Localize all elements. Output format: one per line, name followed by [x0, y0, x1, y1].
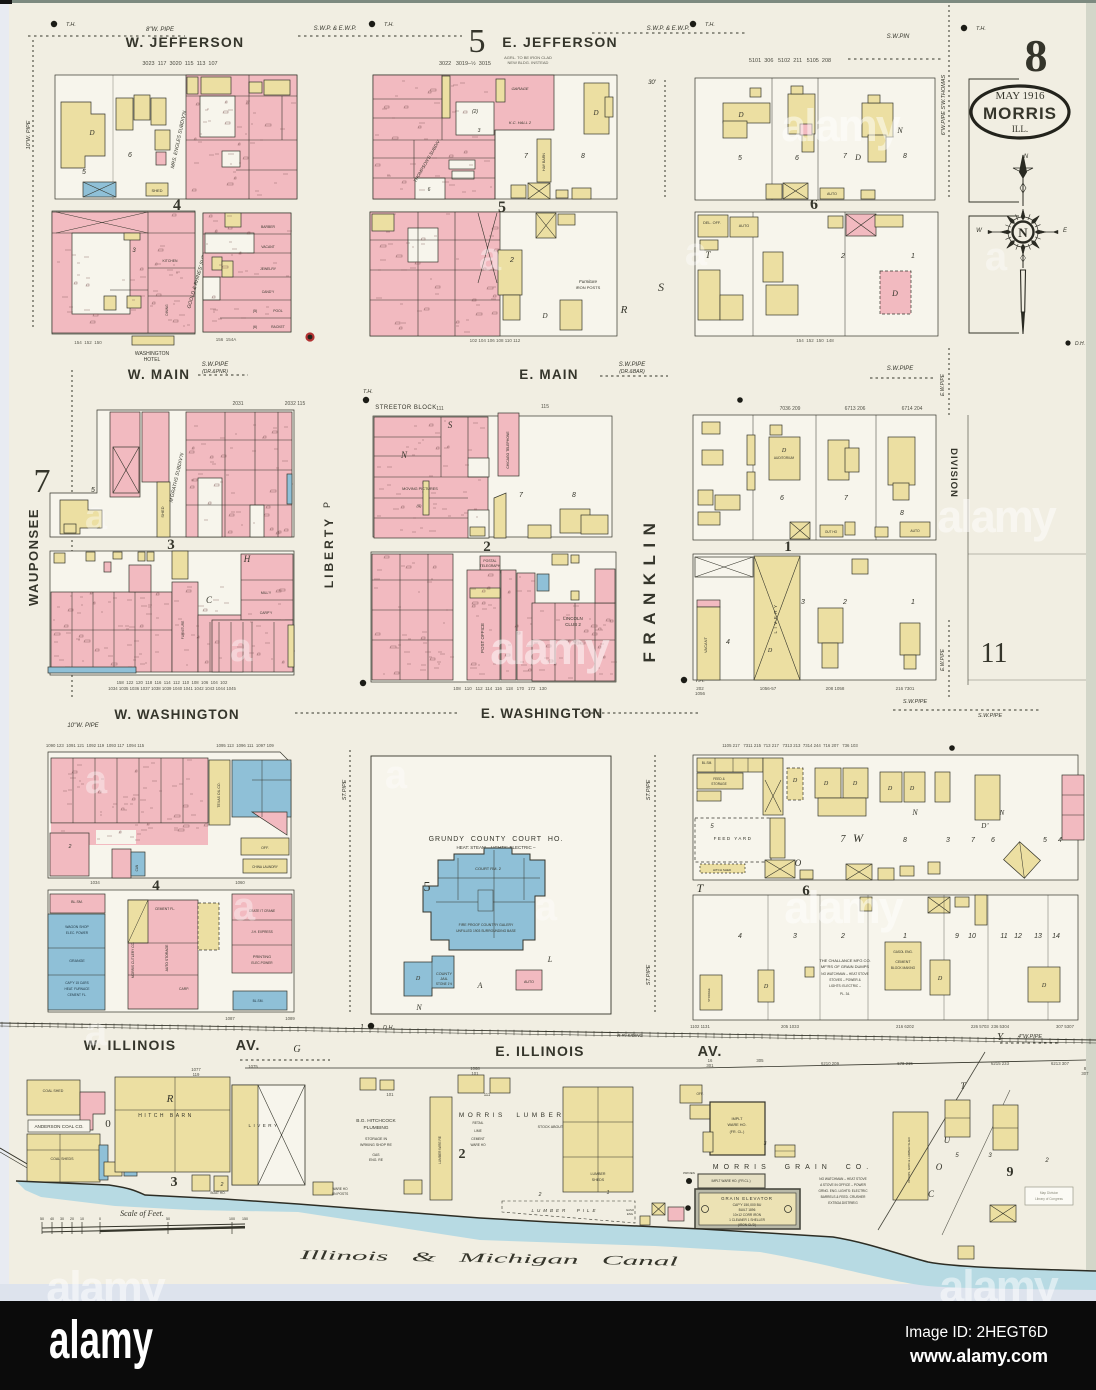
svg-text:Furniture: Furniture [579, 279, 598, 284]
svg-text:6: 6 [991, 837, 995, 844]
svg-text:8: 8 [903, 837, 907, 844]
svg-text:6: 6 [428, 187, 431, 193]
svg-text:3022 3019–½ 3015: 3022 3019–½ 3015 [439, 60, 491, 67]
svg-text:ELEC. POWER: ELEC. POWER [66, 931, 89, 935]
svg-text:SHEDS: SHEDS [592, 1178, 605, 1182]
svg-text:111: 111 [484, 1092, 491, 1097]
svg-text:PRINTING: PRINTING [253, 955, 271, 959]
svg-text:SHED: SHED [151, 188, 162, 193]
svg-text:RETAIL: RETAIL [473, 1121, 484, 1125]
svg-text:1: 1 [911, 599, 915, 606]
svg-text:3: 3 [801, 599, 805, 606]
svg-text:WAGON SHOP: WAGON SHOP [65, 925, 89, 929]
svg-text:a: a [985, 235, 1008, 279]
svg-text:CHINA LAUNDRY: CHINA LAUNDRY [252, 865, 279, 869]
svg-text:307 5307: 307 5307 [1056, 1024, 1075, 1029]
svg-text:MORRIS GRAIN CO.: MORRIS GRAIN CO. [713, 1164, 873, 1171]
svg-text:1087: 1087 [225, 1016, 235, 1021]
svg-text:CEMENT: CEMENT [471, 1137, 485, 1141]
svg-text:14: 14 [1052, 933, 1060, 940]
svg-text:7: 7 [34, 463, 51, 500]
svg-text:a: a [479, 235, 502, 279]
svg-text:S.W.PIN: S.W.PIN [887, 34, 910, 40]
svg-text:S.W.P. & E.W.P.: S.W.P. & E.W.P. [314, 26, 357, 32]
svg-text:2: 2 [840, 933, 845, 940]
svg-text:a: a [85, 1010, 108, 1054]
svg-text:VACANT: VACANT [703, 636, 708, 652]
svg-text:DEL. OFF.: DEL. OFF. [703, 221, 721, 225]
svg-text:CARP’Y: CARP’Y [260, 611, 273, 615]
svg-text:PL. 34.: PL. 34. [840, 992, 850, 996]
svg-text:D: D [909, 786, 915, 792]
svg-text:307: 307 [1081, 1071, 1089, 1076]
svg-text:H: H [243, 554, 251, 564]
svg-text:HOTEL: HOTEL [144, 357, 161, 363]
svg-text:9: 9 [1007, 1165, 1014, 1180]
svg-text:www.alamy.com: www.alamy.com [909, 1346, 1048, 1366]
svg-text:5: 5 [1043, 837, 1047, 844]
svg-text:101: 101 [386, 1092, 394, 1097]
svg-text:4: 4 [738, 933, 742, 940]
svg-text:1034 1035 1036 1037 1038 1039: 1034 1035 1036 1037 1038 1039 1040 1041 … [108, 686, 236, 691]
svg-text:208 1058: 208 1058 [826, 686, 845, 691]
svg-text:115: 115 [541, 404, 549, 410]
svg-text:RACKET: RACKET [271, 325, 285, 329]
svg-text:S.W.P. & E.W.P.: S.W.P. & E.W.P. [647, 26, 690, 32]
svg-text:WARE HO.: WARE HO. [727, 1123, 746, 1127]
svg-text:305: 305 [756, 1058, 764, 1063]
svg-text:6: 6 [780, 495, 784, 502]
svg-text:E. JEFFERSON: E. JEFFERSON [502, 34, 618, 50]
svg-text:POST OFFICE: POST OFFICE [480, 623, 485, 653]
svg-text:3: 3 [764, 1141, 767, 1147]
svg-text:CEMENT FL.: CEMENT FL. [155, 907, 175, 911]
svg-text:205 1033: 205 1033 [781, 1024, 800, 1029]
svg-text:ILL.: ILL. [1012, 124, 1028, 134]
svg-text:0: 0 [105, 1118, 111, 1130]
svg-text:STREETOR BLOCK: STREETOR BLOCK [375, 405, 437, 411]
svg-text:STOVES – POWER &: STOVES – POWER & [829, 978, 861, 982]
svg-text:Image ID: 2HEGT6D: Image ID: 2HEGT6D [905, 1324, 1048, 1341]
svg-text:WARE HO: WARE HO [332, 1187, 348, 1191]
svg-text:1090 123 1091 121 1092 119: 1090 123 1091 121 1092 119 1093 117 1094… [46, 743, 145, 748]
svg-text:1: 1 [784, 539, 792, 555]
svg-text:P: P [322, 502, 332, 508]
svg-text:11: 11 [981, 638, 1008, 669]
svg-text:KITCHEN: KITCHEN [163, 259, 178, 263]
svg-text:N: N [911, 808, 918, 817]
svg-text:S.W.PIPE: S.W.PIPE [887, 366, 914, 372]
svg-text:1: 1 [607, 1190, 610, 1196]
svg-text:(6): (6) [253, 325, 257, 329]
svg-text:T.H.: T.H. [384, 22, 394, 28]
svg-text:2: 2 [1044, 1158, 1049, 1164]
svg-text:Scale of Feet.: Scale of Feet. [120, 1209, 164, 1218]
svg-text:D: D [781, 448, 787, 454]
svg-text:N: N [999, 809, 1005, 817]
svg-text:216 6202: 216 6202 [896, 1024, 915, 1029]
svg-text:119: 119 [193, 1072, 200, 1077]
svg-text:MAY 1916: MAY 1916 [995, 90, 1045, 102]
svg-text:alamy: alamy [49, 1310, 153, 1370]
svg-text:COURT RM. 2: COURT RM. 2 [475, 866, 502, 871]
svg-text:BARRELS & FEED. CRUSHER: BARRELS & FEED. CRUSHER [821, 1195, 867, 1199]
svg-text:OFF.: OFF. [697, 1092, 704, 1096]
svg-text:a: a [85, 494, 108, 538]
svg-text:6714 204: 6714 204 [902, 406, 923, 412]
svg-text:(IRON CL’D): (IRON CL’D) [738, 1223, 756, 1227]
svg-text:BLOCK MAKING: BLOCK MAKING [891, 966, 916, 970]
svg-text:6213 307: 6213 307 [1051, 1061, 1070, 1066]
svg-text:5: 5 [424, 880, 431, 895]
svg-text:4: 4 [1058, 837, 1062, 844]
svg-text:D.H.: D.H. [383, 1025, 394, 1031]
svg-text:JEWELRY: JEWELRY [260, 267, 277, 271]
svg-text:50: 50 [166, 1217, 170, 1221]
svg-text:D: D [1041, 983, 1047, 989]
svg-text:D’: D’ [980, 822, 989, 830]
svg-text:VACANT: VACANT [261, 245, 275, 249]
svg-text:LIME: LIME [474, 1129, 481, 1133]
svg-text:7036 209: 7036 209 [780, 406, 801, 412]
svg-text:D: D [852, 781, 858, 787]
svg-text:216 7301: 216 7301 [896, 686, 915, 691]
svg-text:S: S [658, 280, 664, 294]
svg-text:TELEGRAPH: TELEGRAPH [480, 564, 501, 568]
svg-text:10′′W. PIPE: 10′′W. PIPE [26, 120, 32, 149]
svg-text:N: N [1018, 225, 1028, 240]
svg-text:2: 2 [842, 599, 847, 606]
svg-text:GRUNDY COUNTY COURT HO.: GRUNDY COUNTY COURT HO. [429, 836, 564, 843]
svg-text:DINING: DINING [165, 304, 169, 316]
svg-text:WAUPONSEE: WAUPONSEE [26, 508, 41, 606]
svg-text:8: 8 [1025, 30, 1048, 81]
svg-text:OFF.: OFF. [261, 846, 269, 850]
svg-text:3: 3 [478, 128, 481, 134]
svg-text:LINCOLN: LINCOLN [563, 616, 583, 621]
svg-text:S.W.PIPE: S.W.PIPE [903, 699, 928, 705]
svg-text:FEED YARD: FEED YARD [714, 836, 753, 841]
svg-text:alamy: alamy [490, 623, 610, 674]
svg-text:AV.: AV. [236, 1038, 261, 1054]
svg-text:D: D [592, 109, 598, 117]
svg-text:108 110 112 114 116 11: 108 110 112 114 116 118 170 172 130 [453, 686, 547, 691]
svg-text:S: S [448, 420, 453, 430]
svg-text:20: 20 [70, 1217, 74, 1221]
svg-text:A STOVE IN OFFICE – POWER: A STOVE IN OFFICE – POWER [820, 1183, 867, 1187]
svg-text:J.H. EXPRESS: J.H. EXPRESS [251, 930, 273, 934]
svg-text:R.R. SIDING: R.R. SIDING [617, 1033, 643, 1038]
svg-text:B.G. HITCHCOCK: B.G. HITCHCOCK [356, 1118, 396, 1124]
svg-text:BOAT HO.: BOAT HO. [211, 1191, 226, 1195]
svg-text:8: 8 [900, 510, 904, 517]
svg-text:8: 8 [903, 153, 907, 160]
svg-text:GASOL ENG.: GASOL ENG. [893, 950, 913, 954]
svg-text:154 152 150 148: 154 152 150 148 [796, 338, 834, 343]
svg-text:2: 2 [220, 1182, 224, 1188]
svg-text:150: 150 [242, 1217, 248, 1221]
svg-text:LIVERY: LIVERY [249, 1123, 280, 1128]
svg-text:30′: 30′ [648, 80, 657, 86]
svg-text:2032 115: 2032 115 [285, 401, 306, 407]
svg-text:10′′W. PIPE: 10′′W. PIPE [67, 723, 99, 729]
svg-text:IMPLT: IMPLT [732, 1117, 744, 1121]
svg-text:D: D [763, 984, 769, 990]
svg-text:D: D [792, 778, 798, 784]
svg-text:AUTO: AUTO [524, 980, 534, 984]
svg-text:MOVING PICTURES: MOVING PICTURES [402, 487, 438, 491]
svg-text:R: R [620, 304, 628, 316]
svg-text:IMPLT WARE HO. (FR.CL.): IMPLT WARE HO. (FR.CL.) [711, 1179, 750, 1183]
svg-text:8′′W. PIPE: 8′′W. PIPE [146, 27, 175, 33]
svg-text:100: 100 [229, 1217, 235, 1221]
svg-text:D: D [767, 648, 773, 654]
svg-text:G: G [293, 1044, 300, 1055]
svg-text:(5): (5) [253, 309, 257, 313]
svg-text:FURNITURE: FURNITURE [181, 621, 185, 639]
svg-text:1102 1131: 1102 1131 [690, 1024, 710, 1029]
svg-text:POSTAL: POSTAL [483, 559, 496, 563]
svg-text:S.W.PIPE: S.W.PIPE [978, 713, 1003, 719]
svg-text:1105 217 7311 215 713 217: 1105 217 7311 215 713 217 7313 213 7314 … [722, 743, 858, 748]
svg-text:HITCH SHED: HITCH SHED [713, 868, 732, 872]
svg-text:THE CHALLANCE MFG CO.: THE CHALLANCE MFG CO. [819, 958, 870, 963]
svg-text:3: 3 [946, 837, 950, 844]
svg-text:NO WATCHMAN – HEAT STOVE: NO WATCHMAN – HEAT STOVE [819, 1177, 866, 1181]
svg-text:10×12 CORR IRON: 10×12 CORR IRON [733, 1213, 762, 1217]
svg-text:2: 2 [538, 1192, 542, 1198]
svg-text:POOL: POOL [273, 309, 283, 313]
svg-text:HAY BARN: HAY BARN [542, 153, 546, 171]
svg-text:W. WASHINGTON: W. WASHINGTON [114, 707, 239, 722]
svg-text:Map Division: Map Division [1040, 1191, 1058, 1195]
svg-text:W: W [853, 831, 864, 845]
svg-text:3: 3 [793, 933, 797, 940]
svg-text:NO WATCHMAN – HEAT STOVE: NO WATCHMAN – HEAT STOVE [821, 972, 868, 976]
svg-text:EXTBGA DISTRIB’G: EXTBGA DISTRIB’G [828, 1201, 858, 1205]
svg-text:FRANKLIN: FRANKLIN [640, 516, 659, 663]
svg-text:AUTO: AUTO [739, 224, 750, 228]
svg-text:ST.PIPE: ST.PIPE [342, 779, 348, 800]
svg-text:COUNTY: COUNTY [436, 972, 452, 976]
svg-text:a: a [685, 230, 708, 274]
svg-text:CAP’Y 15 CARS: CAP’Y 15 CARS [65, 981, 89, 985]
svg-text:9: 9 [955, 933, 959, 940]
svg-text:HITCH BARN: HITCH BARN [138, 1113, 194, 1119]
svg-text:D: D [823, 781, 829, 787]
svg-text:3: 3 [171, 1175, 178, 1190]
svg-text:5: 5 [469, 23, 486, 60]
svg-text:TEXAS OIL CO.: TEXAS OIL CO. [217, 782, 221, 807]
svg-text:T.H.: T.H. [363, 389, 373, 395]
svg-text:WARE HO: WARE HO [470, 1143, 486, 1147]
svg-text:BARBER: BARBER [261, 225, 275, 229]
svg-text:BL.SM.: BL.SM. [253, 999, 264, 1003]
svg-text:1034: 1034 [90, 880, 100, 885]
svg-text:30: 30 [60, 1217, 64, 1221]
svg-text:ENG. RE: ENG. RE [369, 1158, 384, 1162]
svg-text:ELEC.POWER: ELEC.POWER [251, 961, 273, 965]
svg-text:158 122 120 118 116 114: 158 122 120 118 116 114 112 110 108 106 … [117, 680, 228, 685]
svg-text:FIRE PROOF COUNTRY GALERY: FIRE PROOF COUNTRY GALERY [459, 923, 514, 927]
svg-text:3023 117 3020 115 113 107: 3023 117 3020 115 113 107 [142, 61, 217, 67]
svg-text:a: a [535, 885, 558, 929]
svg-text:D: D [415, 976, 421, 982]
svg-text:GRAIN ELEVATOR: GRAIN ELEVATOR [721, 1196, 773, 1201]
svg-text:JAIL: JAIL [440, 977, 448, 981]
svg-text:a: a [233, 885, 256, 929]
svg-text:S.W.PIPE: S.W.PIPE [619, 362, 646, 368]
svg-text:D: D [541, 312, 547, 320]
svg-text:AUTO STORAGE: AUTO STORAGE [165, 944, 169, 972]
svg-text:1: 1 [903, 933, 907, 940]
svg-text:1056: 1056 [695, 691, 706, 696]
svg-text:STORAGE: STORAGE [711, 782, 727, 786]
svg-text:C: C [206, 595, 213, 605]
svg-text:S.W.PIPE: S.W.PIPE [202, 362, 229, 368]
svg-text:(2): (2) [472, 109, 478, 115]
svg-text:ANDERSON COAL CO.: ANDERSON COAL CO. [34, 1124, 83, 1129]
svg-text:(FR. CL.): (FR. CL.) [730, 1130, 745, 1134]
svg-text:K.C. HALL 2: K.C. HALL 2 [509, 120, 532, 125]
svg-text:101: 101 [471, 1071, 479, 1076]
svg-text:O: O [936, 1162, 943, 1172]
svg-text:2: 2 [840, 253, 845, 260]
svg-text:PLUMBING: PLUMBING [363, 1125, 388, 1131]
svg-text:COAL SHEDS: COAL SHEDS [50, 1157, 74, 1161]
svg-text:1095 113 1096 111 1097 109: 1095 113 1096 111 1097 109 [216, 743, 274, 748]
svg-text:ST.PIPE: ST.PIPE [646, 964, 652, 985]
svg-text:alamy: alamy [781, 100, 901, 151]
svg-text:MF’RS OF GRAIN DUMPS: MF’RS OF GRAIN DUMPS [821, 964, 870, 969]
svg-text:1056-57: 1056-57 [760, 686, 777, 691]
svg-text:2: 2 [509, 257, 514, 264]
svg-text:LUMBER PILE: LUMBER PILE [531, 1208, 598, 1213]
svg-text:R: R [166, 1093, 174, 1105]
svg-text:6713 206: 6713 206 [845, 406, 866, 412]
svg-text:a: a [85, 758, 108, 802]
svg-text:WRKING SHOP RE: WRKING SHOP RE [360, 1143, 392, 1147]
svg-text:ENG: ENG [627, 1212, 633, 1216]
svg-text:N: N [1024, 154, 1029, 160]
svg-text:a: a [385, 753, 408, 797]
svg-text:N: N [415, 1003, 422, 1012]
svg-text:L: L [547, 955, 553, 964]
svg-text:E.W.PIPE: E.W.PIPE [940, 648, 946, 671]
svg-text:alamy: alamy [784, 882, 904, 933]
svg-text:10: 10 [968, 933, 976, 940]
svg-text:4: 4 [726, 639, 730, 646]
svg-text:2: 2 [459, 1147, 466, 1162]
svg-text:C: C [928, 1189, 935, 1199]
svg-text:ON POSTS: ON POSTS [332, 1192, 348, 1196]
svg-text:301: 301 [706, 1063, 714, 1068]
svg-text:LIGHTS: ELECTRIC –: LIGHTS: ELECTRIC – [829, 984, 861, 988]
svg-text:226 5703 236 5304: 226 5703 236 5304 [971, 1024, 1010, 1029]
svg-text:3: 3 [167, 537, 175, 553]
svg-text:CAN: CAN [135, 864, 139, 871]
svg-text:CARP.: CARP. [179, 987, 189, 991]
svg-text:102 104 106 108 110 112: 102 104 106 108 110 112 [470, 338, 521, 343]
svg-text:AUTO: AUTO [910, 529, 920, 533]
svg-text:154 152 150: 154 152 150 [74, 340, 102, 345]
svg-text:6: 6 [795, 155, 799, 162]
svg-text:STORAGE: STORAGE [707, 988, 711, 1002]
svg-text:8: 8 [581, 153, 585, 160]
svg-text:SHED: SHED [160, 506, 165, 517]
svg-text:D: D [891, 289, 898, 298]
svg-text:ST.PIPE: ST.PIPE [646, 779, 652, 800]
svg-text:1 CLEANER 1 SHELLER: 1 CLEANER 1 SHELLER [729, 1218, 765, 1222]
svg-text:UNFILLED 1903 SURROUNDING BASE: UNFILLED 1903 SURROUNDING BASE [456, 929, 517, 933]
svg-text:D: D [737, 111, 743, 119]
svg-text:5: 5 [738, 155, 742, 162]
svg-text:AUDITORIUM: AUDITORIUM [774, 456, 794, 460]
svg-text:alamy: alamy [937, 491, 1057, 542]
svg-text:D: D [937, 976, 943, 982]
svg-text:CAP’Y 150,000 BU: CAP’Y 150,000 BU [733, 1203, 762, 1207]
svg-text:1089: 1089 [285, 1016, 295, 1021]
svg-text:11: 11 [1000, 933, 1007, 940]
svg-text:2031: 2031 [232, 401, 243, 407]
svg-text:5101 306 5102 211 5105: 5101 306 5102 211 5105 208 [749, 58, 831, 64]
svg-text:W. MAIN: W. MAIN [128, 367, 190, 382]
svg-text:0: 0 [99, 1217, 101, 1221]
svg-text:COAL SHED: COAL SHED [43, 1089, 64, 1093]
svg-text:BUILT 1896: BUILT 1896 [739, 1208, 756, 1212]
svg-text:D.H.: D.H. [1075, 341, 1085, 347]
svg-text:D: D [887, 786, 893, 792]
svg-text:CHICAGO TELEPHONE: CHICAGO TELEPHONE [506, 431, 510, 469]
svg-text:(5): (5) [417, 503, 423, 508]
svg-text:6′′W.PIPE S′W.THOMAS: 6′′W.PIPE S′W.THOMAS [941, 74, 947, 135]
svg-text:Library of Congress: Library of Congress [1035, 1197, 1063, 1201]
svg-text:D: D [854, 153, 861, 162]
svg-text:D: D [88, 129, 94, 137]
svg-text:GRANGE: GRANGE [69, 959, 85, 963]
svg-text:E. ILLINOIS: E. ILLINOIS [495, 1043, 584, 1059]
svg-text:CEMENT: CEMENT [895, 960, 911, 964]
svg-text:BL.SM.: BL.SM. [71, 900, 83, 904]
svg-text:CAND’Y: CAND’Y [262, 290, 275, 294]
svg-text:(DR.&PNR): (DR.&PNR) [202, 369, 228, 375]
svg-text:10: 10 [80, 1217, 84, 1221]
svg-text:AUTO: AUTO [827, 192, 837, 196]
svg-text:6: 6 [128, 152, 132, 159]
svg-text:LIBERTY: LIBERTY [322, 516, 336, 588]
svg-text:OUT HO: OUT HO [825, 530, 838, 534]
svg-text:1: 1 [911, 253, 915, 260]
svg-text:FEED &: FEED & [713, 777, 725, 781]
svg-text:12: 12 [1014, 933, 1022, 940]
svg-text:LIVERY: LIVERY [773, 603, 778, 634]
svg-text:STORAGE IN: STORAGE IN [365, 1137, 388, 1141]
svg-text:MORRIS CUTLERY CO.: MORRIS CUTLERY CO. [131, 942, 135, 978]
svg-text:O: O [795, 858, 802, 868]
svg-text:GAS: GAS [372, 1153, 380, 1157]
svg-text:MORRIS: MORRIS [983, 104, 1057, 123]
svg-text:40: 40 [50, 1217, 54, 1221]
svg-text:HEAT. FURNACE: HEAT. FURNACE [64, 987, 89, 991]
svg-text:T.H.: T.H. [705, 22, 715, 28]
svg-text:156 154A: 156 154A [216, 337, 237, 342]
svg-text:E.W.PIPE: E.W.PIPE [940, 373, 946, 396]
svg-text:T.H.: T.H. [976, 26, 986, 32]
svg-text:50: 50 [40, 1217, 44, 1221]
svg-text:111: 111 [436, 406, 444, 412]
svg-text:8: 8 [572, 492, 576, 499]
svg-text:2: 2 [68, 844, 72, 850]
